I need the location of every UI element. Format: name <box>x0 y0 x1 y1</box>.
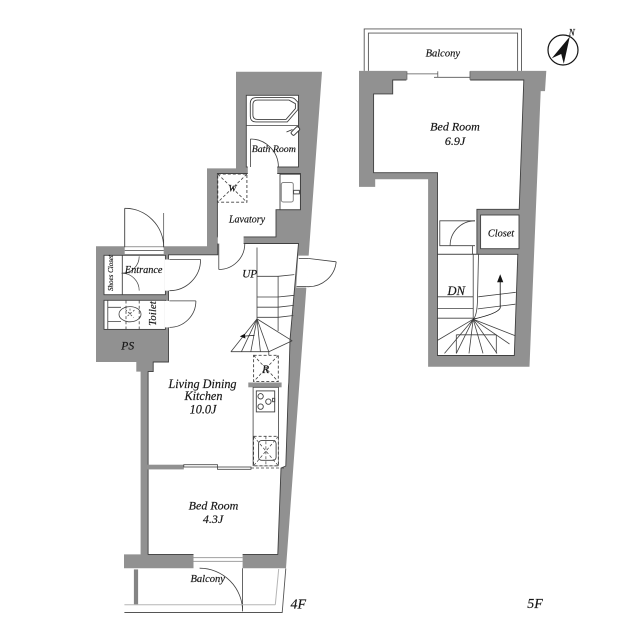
svg-text:Toilet: Toilet <box>147 300 159 326</box>
svg-text:R: R <box>261 364 269 376</box>
svg-text:DN: DN <box>446 284 466 298</box>
svg-text:Bed Room: Bed Room <box>430 120 480 134</box>
svg-text:6.9J: 6.9J <box>445 134 466 148</box>
svg-text:4.3J: 4.3J <box>203 512 224 526</box>
svg-text:5F: 5F <box>527 597 543 612</box>
svg-text:Kitchen: Kitchen <box>184 389 223 403</box>
svg-text:Shoes Closet: Shoes Closet <box>107 254 115 291</box>
svg-text:Entrance: Entrance <box>124 265 163 276</box>
svg-text:Bed Room: Bed Room <box>189 499 239 513</box>
svg-text:4F: 4F <box>291 597 307 612</box>
svg-text:10.0J: 10.0J <box>190 402 217 416</box>
svg-text:UP: UP <box>242 269 257 281</box>
svg-text:Balcony: Balcony <box>426 49 461 60</box>
svg-text:Closet: Closet <box>488 229 515 240</box>
svg-text:Balcony: Balcony <box>190 574 225 585</box>
svg-text:PS: PS <box>120 340 134 352</box>
svg-text:N: N <box>568 28 576 38</box>
svg-text:Lavatory: Lavatory <box>228 214 266 225</box>
svg-text:W: W <box>228 185 237 195</box>
svg-text:Bath Room: Bath Room <box>252 144 296 155</box>
